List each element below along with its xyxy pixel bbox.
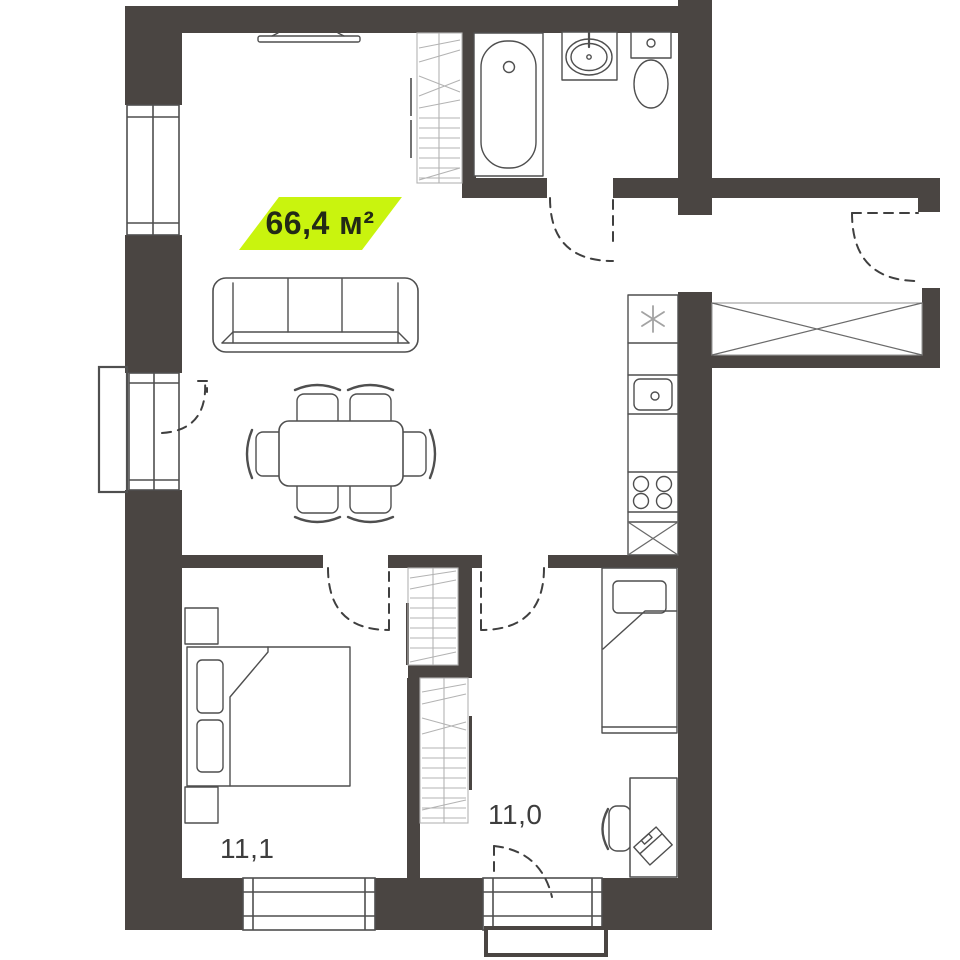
dining-table <box>279 421 403 486</box>
door-bedroom-left <box>328 568 389 630</box>
tv <box>258 33 360 42</box>
storage-x-closet <box>712 303 922 355</box>
door-bathroom <box>550 198 613 261</box>
wall-storage-bottom <box>712 355 940 368</box>
wall-closet-right <box>458 568 472 667</box>
window-bedroom-left <box>243 878 375 930</box>
single-bed <box>602 568 677 733</box>
wall-closet-mid <box>408 665 472 678</box>
wall-bottom-mid <box>375 878 483 930</box>
toilet <box>631 32 671 108</box>
closet-between-rooms-lower <box>420 678 468 823</box>
wall-closet-left <box>407 678 420 878</box>
double-bed <box>187 647 350 786</box>
balcony-door-bottom <box>483 878 606 955</box>
room-label-bedroom-left: 11,1 <box>220 833 274 865</box>
window-living-left <box>127 105 179 235</box>
bathtub <box>474 33 543 176</box>
balcony-threshold <box>486 928 606 955</box>
floor-plan-drawing <box>0 0 960 960</box>
wall-entry-stub <box>918 178 940 212</box>
closet-between-rooms-upper <box>408 568 458 665</box>
area-badge: 66,4 м² <box>239 197 401 250</box>
wall-left-mid <box>125 235 182 373</box>
wall-bath-bottom-right <box>613 178 678 198</box>
wall-right-strip-upper <box>678 0 712 215</box>
bathroom-sink <box>562 32 617 80</box>
wall-bath-bottom-left <box>462 178 547 198</box>
wall-bottom-left <box>125 878 243 930</box>
wall-corridor-top <box>712 178 940 198</box>
floor-plan: 66,4 м² 11,1 11,0 <box>0 0 960 960</box>
door-bedroom-right <box>481 568 544 630</box>
nightstand-bottom <box>185 787 218 823</box>
nightstand-top <box>185 608 218 644</box>
room-label-bedroom-right: 11,0 <box>488 799 542 831</box>
sofa <box>213 278 418 352</box>
door-entry <box>852 213 918 281</box>
wall-left-upper <box>125 6 182 105</box>
desk-chair <box>603 806 632 851</box>
wall-right-strip-lower <box>678 292 712 930</box>
wardrobe-hall <box>411 33 462 183</box>
wall-interior-left <box>182 555 323 568</box>
wall-interior-right <box>548 555 678 568</box>
kitchen-counter <box>628 295 678 555</box>
balcony-door-left <box>99 367 179 492</box>
wall-top <box>125 6 712 33</box>
furniture <box>185 32 678 877</box>
closet-slide-line <box>469 716 472 790</box>
wall-left-lower <box>125 490 182 878</box>
wall-interior-mid <box>388 555 482 568</box>
